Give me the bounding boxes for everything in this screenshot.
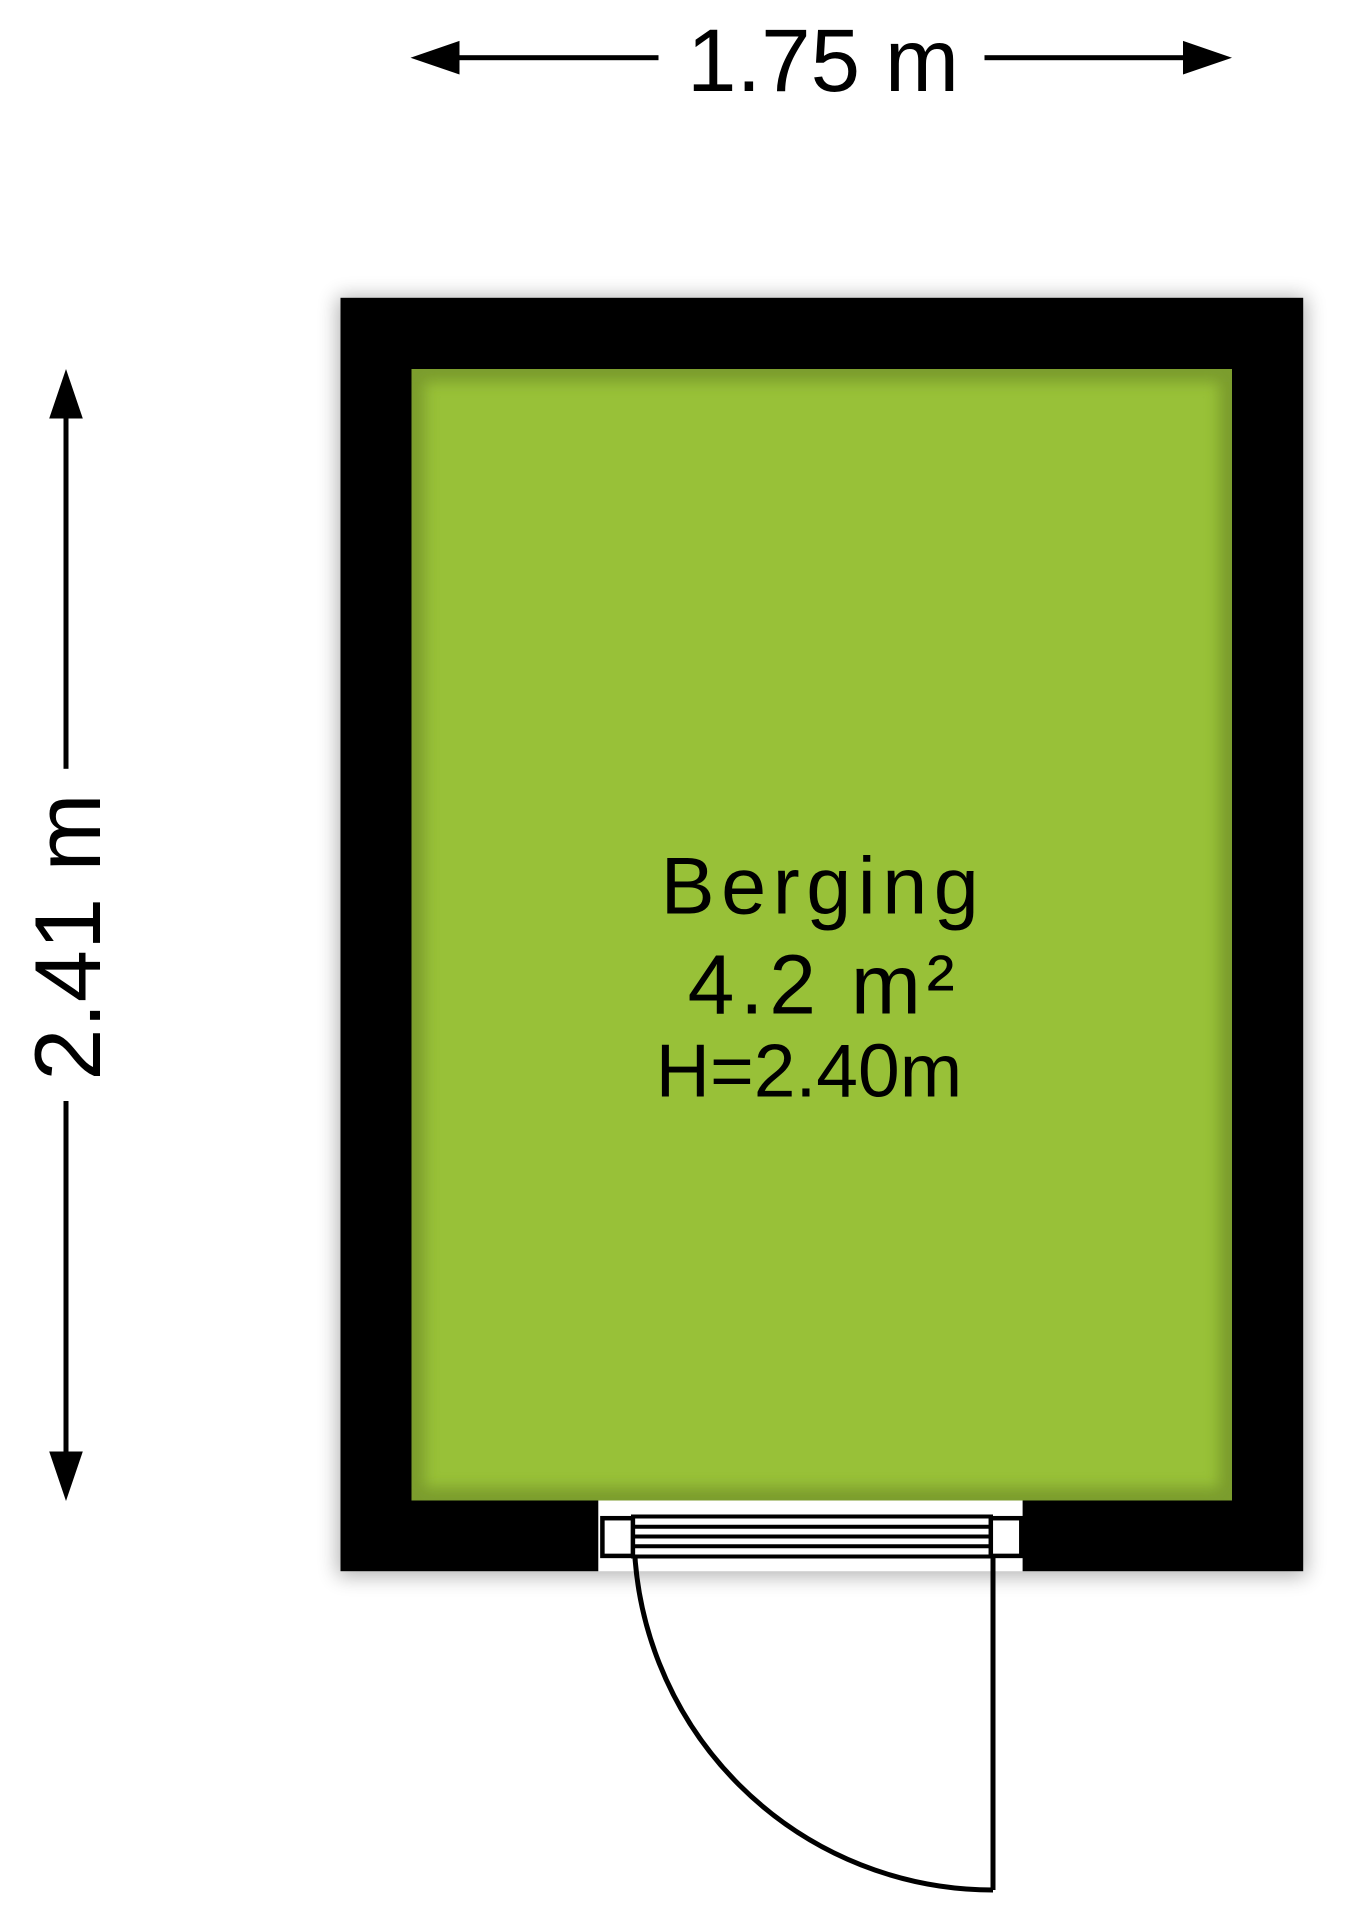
svg-text:H=2.40m: H=2.40m [656, 1029, 962, 1113]
svg-text:4.2 m²: 4.2 m² [688, 938, 961, 1032]
svg-text:Berging: Berging [661, 842, 986, 932]
svg-text:2.41 m: 2.41 m [15, 793, 120, 1080]
svg-text:1.75 m: 1.75 m [687, 10, 959, 110]
